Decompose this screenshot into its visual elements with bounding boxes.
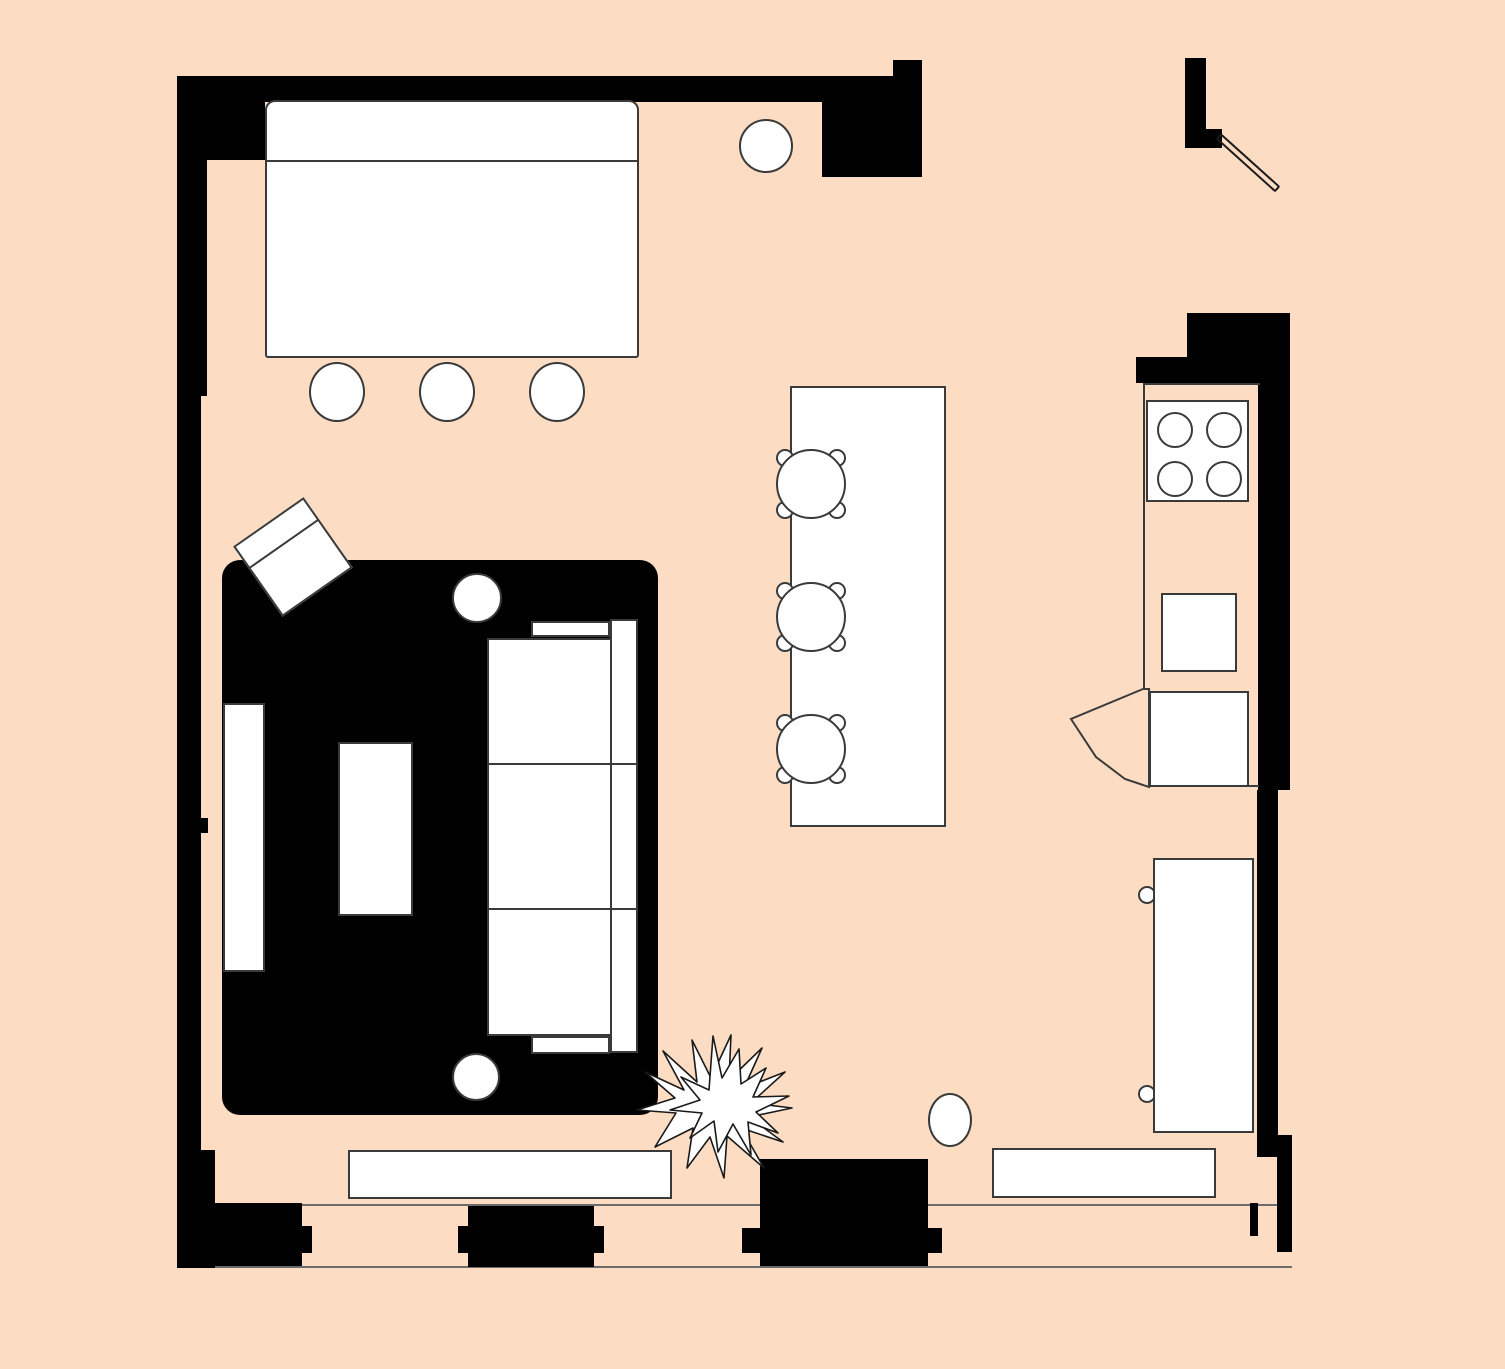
wall-top-band [177,76,922,102]
stool-seat [776,582,846,652]
window-pier-left [468,1206,594,1267]
window-pier-left-tab-a [458,1226,468,1253]
window-band-outer-line [215,1266,1292,1268]
dining-chair-2 [419,362,475,422]
burner-icon [1206,412,1242,448]
counter-edge-top [1143,383,1260,385]
burner-icon [1157,412,1193,448]
dining-chair-1 [309,362,365,422]
window-pier-center-tab-b [928,1228,942,1253]
dining-table-edge-line [266,160,638,162]
wall-kitchen-top-arm [1136,357,1260,383]
kitchen-stool [928,1093,972,1147]
fridge [1153,858,1254,1133]
sofa-backrest-divider-1 [611,763,637,765]
bar-stool-3 [776,714,846,784]
wall-right-upper [1258,357,1290,790]
counter-edge-vertical [1143,383,1145,689]
coffee-table-small [338,742,413,916]
wall-right-lower [1257,790,1278,1157]
wall-top-right-block [822,102,922,177]
sofa-backrest-divider-2 [611,908,637,910]
sofa-backrest [610,619,638,1053]
kitchen-bench [992,1148,1216,1198]
burner-icon [1157,461,1193,497]
wall-bottom-left-tab [302,1226,312,1253]
kitchen-sink [1161,593,1237,672]
side-table-top [452,573,502,623]
side-table-bottom [452,1053,500,1101]
corner-cabinet-door [1071,689,1149,787]
sofa-seat-divider-1 [488,763,611,765]
wall-bottom-left-corner [177,1203,302,1268]
stool-seat [776,449,846,519]
wall-top-right-riser [893,60,922,102]
coffee-table-long [223,703,265,972]
bar-stool-1 [776,449,846,519]
stool-seat [776,714,846,784]
dining-table [265,100,639,358]
sofa-seat-divider-2 [488,908,611,910]
window-pier-center [760,1159,928,1266]
door-leaf [1216,133,1281,192]
dining-chair-head [739,119,793,173]
door-jamb [1185,58,1206,148]
wall-left-upper [177,76,207,396]
sofa-armrest-bottom [531,1036,610,1054]
wall-left-lower [177,395,201,1258]
wall-kitchen-top-block [1187,313,1290,357]
sofa-armrest-top [531,621,610,637]
window-pier-left-tab-b [594,1226,604,1253]
kitchen-appliance [1149,691,1249,787]
floor-plan [0,0,1505,1369]
burner-icon [1206,461,1242,497]
window-pier-center-tab-a [742,1228,760,1253]
wall-left-bump [201,818,208,833]
stove [1146,400,1249,502]
bar-stool-2 [776,582,846,652]
wall-bottom-right-step [1250,1203,1258,1236]
sofa-seats [487,638,612,1036]
wall-right-foot [1277,1135,1292,1252]
armchair-backrest-line [249,519,319,569]
media-bench [348,1150,672,1199]
dining-chair-3 [529,362,585,422]
